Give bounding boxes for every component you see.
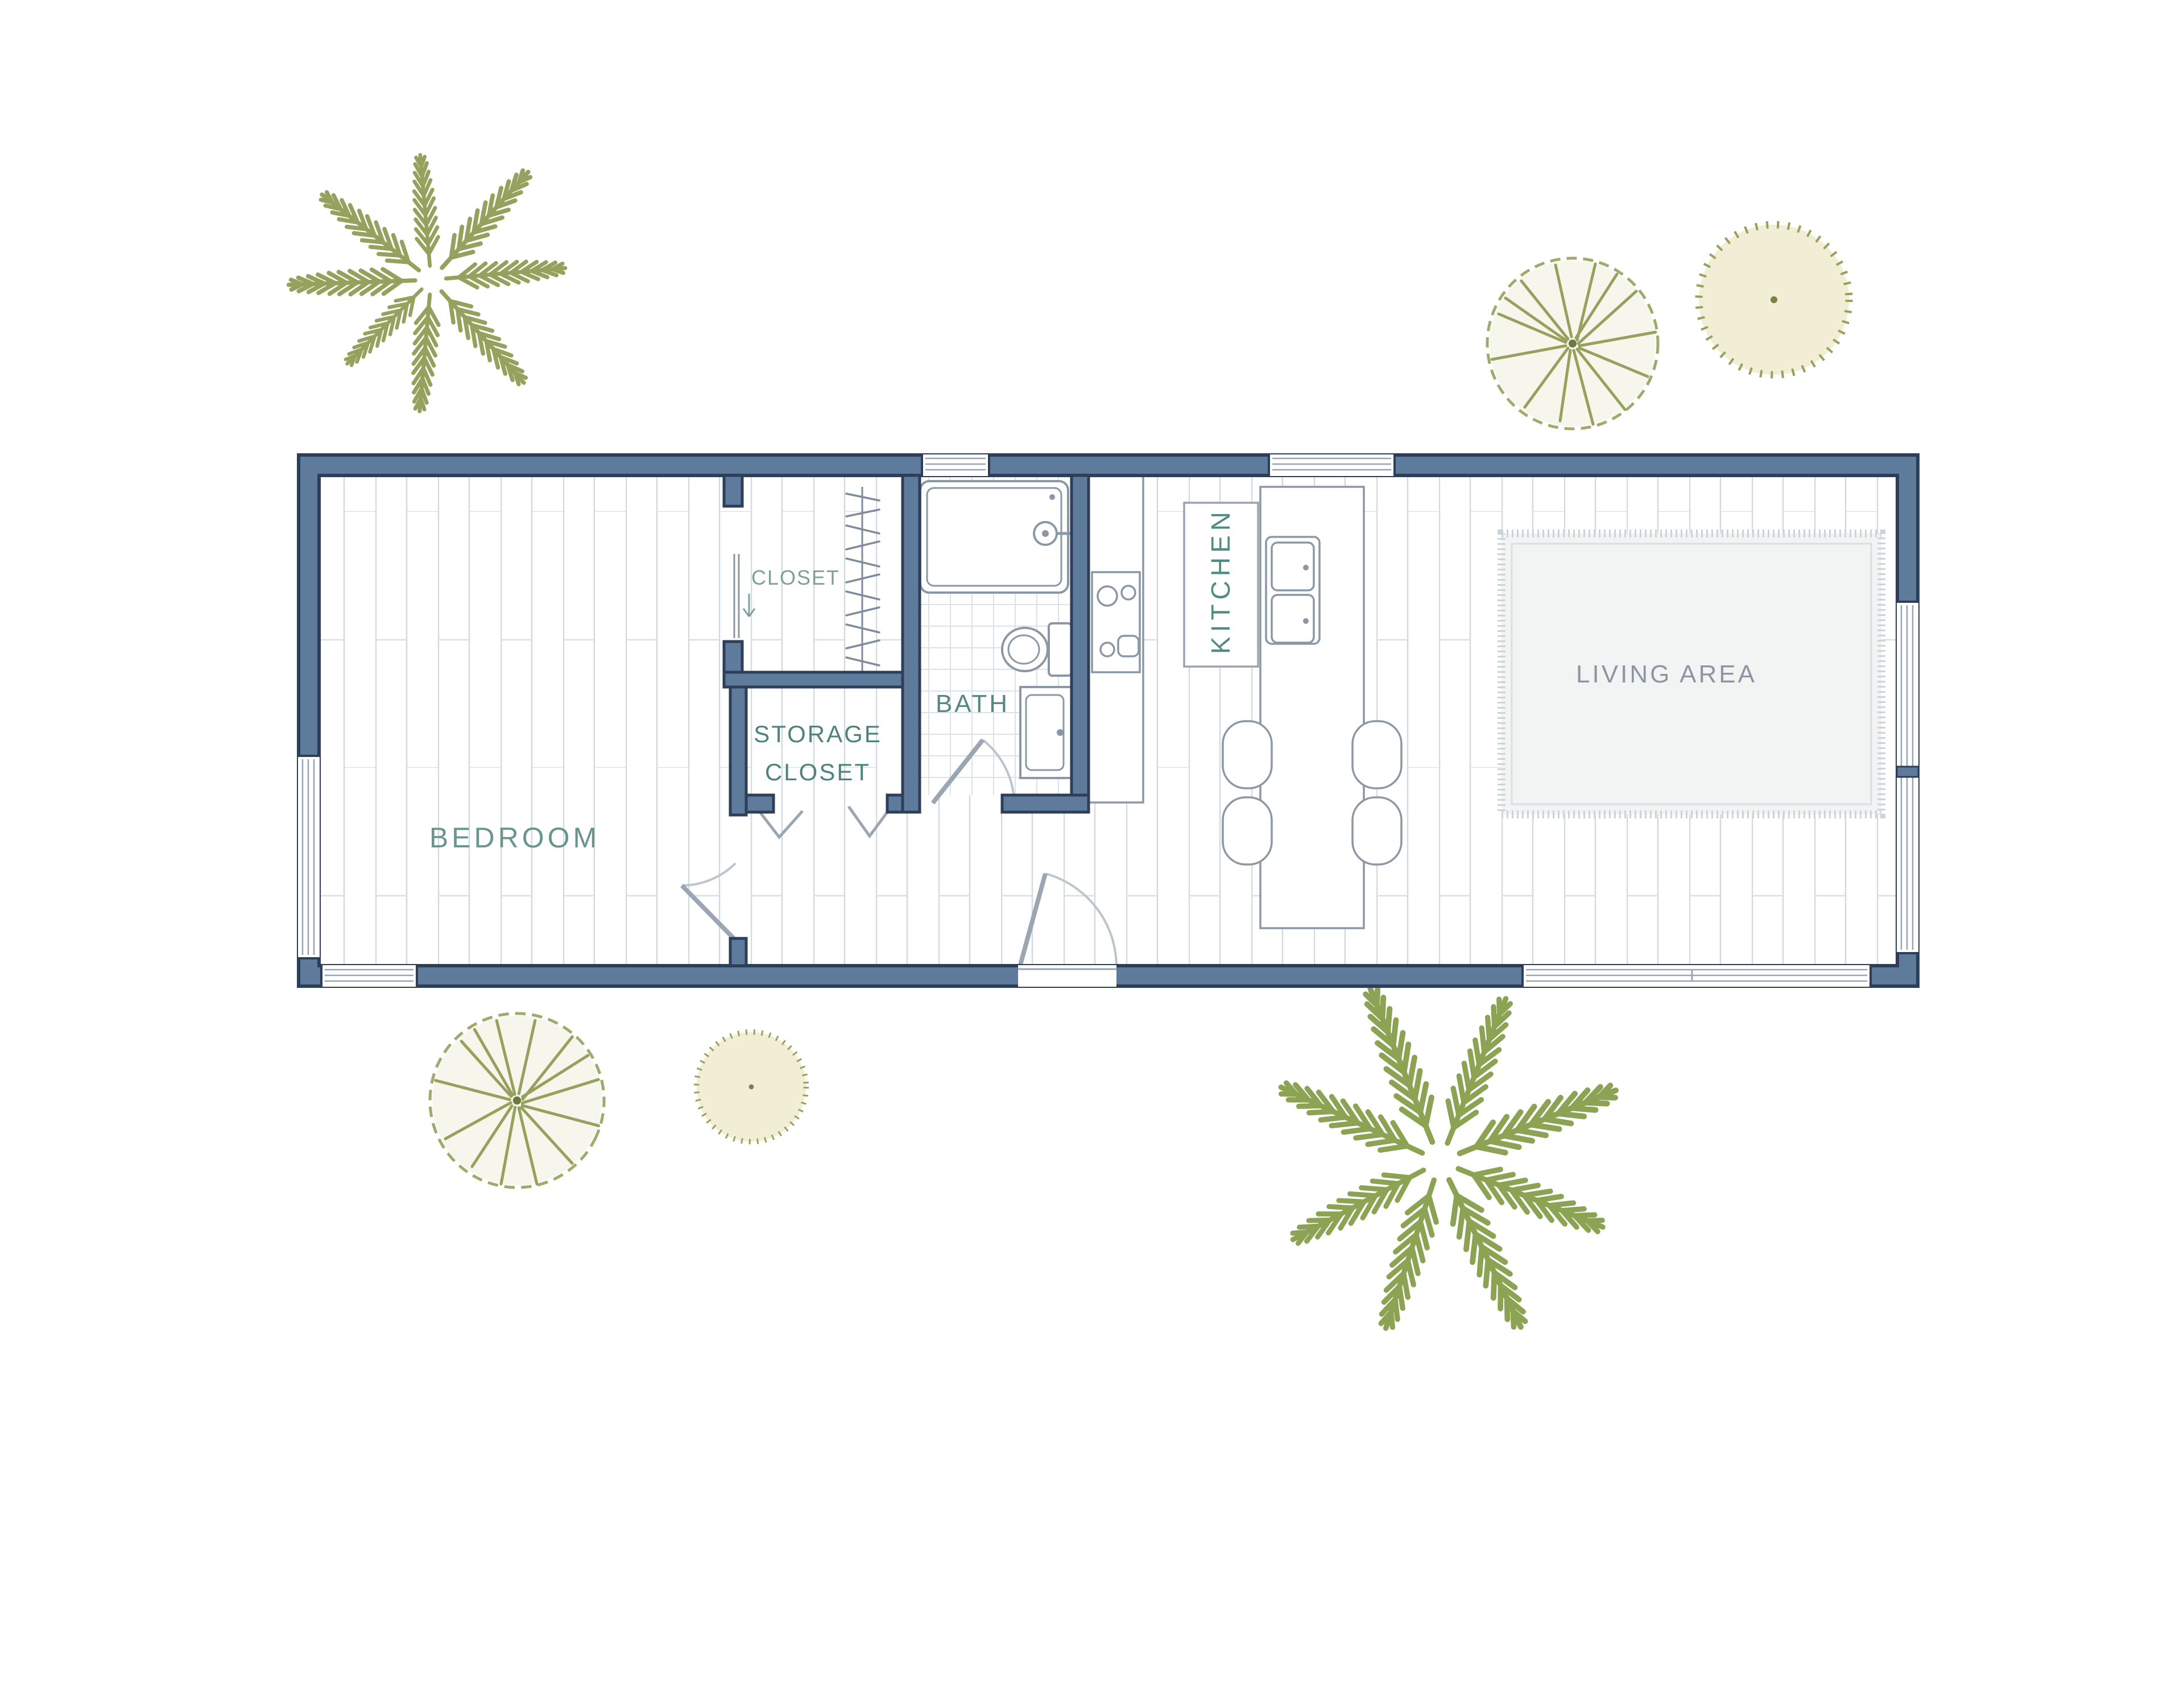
watercolor-wash (23, 57, 2161, 1342)
floor-plan-sheet: BEDROOM CLOSET STORAGE CLOSET BATH KITCH… (0, 0, 2184, 1684)
